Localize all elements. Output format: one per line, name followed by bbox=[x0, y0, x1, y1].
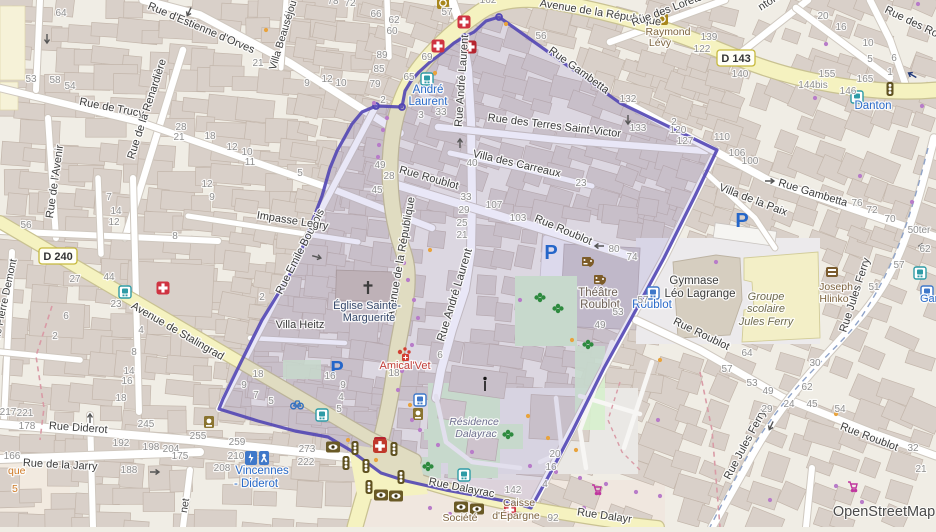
svg-text:6: 6 bbox=[437, 350, 443, 361]
svg-text:12: 12 bbox=[201, 179, 213, 190]
svg-text:40: 40 bbox=[466, 158, 478, 169]
svg-text:89: 89 bbox=[376, 50, 388, 61]
svg-text:- Diderot: - Diderot bbox=[234, 478, 279, 490]
svg-text:66: 66 bbox=[370, 9, 382, 20]
svg-text:2: 2 bbox=[380, 95, 386, 106]
svg-text:155: 155 bbox=[819, 69, 836, 80]
svg-text:45: 45 bbox=[371, 185, 383, 196]
svg-text:140: 140 bbox=[732, 69, 749, 80]
svg-text:51: 51 bbox=[868, 282, 880, 293]
svg-text:Danton: Danton bbox=[854, 100, 891, 112]
svg-text:255: 255 bbox=[190, 431, 207, 442]
svg-text:3: 3 bbox=[418, 110, 424, 121]
svg-text:192: 192 bbox=[113, 438, 130, 449]
svg-text:245: 245 bbox=[138, 419, 155, 430]
svg-text:7: 7 bbox=[106, 192, 112, 203]
svg-text:57: 57 bbox=[441, 7, 453, 18]
svg-text:57: 57 bbox=[721, 364, 733, 375]
svg-text:Joseph: Joseph bbox=[819, 281, 853, 293]
svg-text:50ter: 50ter bbox=[908, 225, 931, 236]
svg-text:21: 21 bbox=[252, 58, 264, 69]
svg-text:142: 142 bbox=[505, 485, 522, 496]
svg-text:49: 49 bbox=[594, 320, 606, 331]
svg-text:54: 54 bbox=[834, 404, 846, 415]
svg-text:12: 12 bbox=[321, 74, 333, 85]
svg-text:273: 273 bbox=[299, 444, 316, 455]
svg-text:Gymnase: Gymnase bbox=[669, 275, 718, 287]
svg-text:32: 32 bbox=[907, 443, 919, 454]
svg-text:70: 70 bbox=[884, 214, 896, 225]
svg-text:Jules Ferry: Jules Ferry bbox=[738, 316, 795, 328]
svg-text:18: 18 bbox=[388, 368, 400, 379]
svg-text:62: 62 bbox=[801, 382, 813, 393]
svg-text:14: 14 bbox=[110, 206, 122, 217]
svg-text:24: 24 bbox=[783, 399, 795, 410]
svg-text:23: 23 bbox=[110, 299, 122, 310]
svg-text:162: 162 bbox=[480, 0, 497, 6]
svg-text:178: 178 bbox=[19, 421, 36, 432]
svg-text:144bis: 144bis bbox=[798, 80, 827, 91]
svg-text:9: 9 bbox=[209, 192, 215, 203]
svg-text:33: 33 bbox=[460, 192, 472, 203]
svg-text:21: 21 bbox=[173, 132, 185, 143]
svg-text:Résidence: Résidence bbox=[449, 416, 499, 428]
svg-text:133: 133 bbox=[630, 123, 647, 134]
svg-text:5: 5 bbox=[268, 396, 274, 407]
svg-text:André: André bbox=[413, 84, 444, 96]
svg-text:58: 58 bbox=[49, 75, 61, 86]
svg-text:8: 8 bbox=[131, 347, 137, 358]
svg-text:72: 72 bbox=[344, 0, 356, 9]
svg-text:80: 80 bbox=[608, 244, 620, 255]
svg-text:20: 20 bbox=[549, 449, 561, 460]
svg-text:62: 62 bbox=[919, 244, 931, 255]
svg-text:103: 103 bbox=[510, 213, 527, 224]
svg-text:56: 56 bbox=[20, 220, 32, 231]
svg-text:P: P bbox=[544, 242, 557, 264]
svg-text:208: 208 bbox=[214, 463, 231, 474]
svg-text:29: 29 bbox=[458, 205, 470, 216]
svg-text:222: 222 bbox=[298, 457, 315, 468]
svg-text:64: 64 bbox=[741, 348, 753, 359]
svg-text:5: 5 bbox=[867, 54, 873, 65]
svg-text:28: 28 bbox=[383, 171, 395, 182]
svg-text:8: 8 bbox=[172, 231, 178, 242]
svg-text:10: 10 bbox=[335, 78, 347, 89]
svg-text:que: que bbox=[8, 465, 26, 477]
svg-text:146: 146 bbox=[840, 86, 857, 97]
svg-text:Hlinko: Hlinko bbox=[819, 293, 848, 305]
svg-text:18: 18 bbox=[252, 369, 264, 380]
svg-text:53: 53 bbox=[612, 307, 624, 318]
svg-text:9: 9 bbox=[340, 380, 346, 391]
svg-text:9: 9 bbox=[241, 380, 247, 391]
svg-text:12: 12 bbox=[226, 142, 238, 153]
svg-text:18: 18 bbox=[115, 393, 127, 404]
svg-text:1: 1 bbox=[887, 67, 893, 78]
svg-text:2: 2 bbox=[259, 292, 265, 303]
svg-text:Vincennes: Vincennes bbox=[235, 465, 289, 477]
svg-text:166: 166 bbox=[4, 451, 21, 462]
svg-text:Société: Société bbox=[442, 512, 477, 524]
svg-text:33: 33 bbox=[435, 107, 447, 118]
svg-text:20: 20 bbox=[817, 11, 829, 22]
svg-text:54: 54 bbox=[64, 81, 76, 92]
svg-text:92: 92 bbox=[547, 513, 559, 524]
svg-text:4: 4 bbox=[138, 325, 144, 336]
svg-text:16: 16 bbox=[324, 371, 336, 382]
svg-text:188: 188 bbox=[121, 465, 138, 476]
svg-text:132: 132 bbox=[620, 94, 637, 105]
svg-text:5: 5 bbox=[12, 483, 18, 495]
svg-text:Léo Lagrange: Léo Lagrange bbox=[665, 288, 736, 300]
svg-text:85: 85 bbox=[373, 64, 385, 75]
svg-text:65: 65 bbox=[403, 72, 415, 83]
svg-text:78: 78 bbox=[327, 0, 339, 7]
svg-text:76: 76 bbox=[851, 198, 863, 209]
svg-text:Groupe: Groupe bbox=[748, 291, 785, 303]
svg-text:122: 122 bbox=[694, 44, 711, 55]
svg-text:2: 2 bbox=[52, 331, 58, 342]
svg-text:D 240: D 240 bbox=[43, 251, 72, 263]
svg-text:53: 53 bbox=[25, 74, 37, 85]
svg-text:74: 74 bbox=[626, 252, 638, 263]
svg-text:Lévy: Lévy bbox=[649, 37, 672, 49]
svg-text:107: 107 bbox=[486, 200, 503, 211]
svg-text:Théâtre: Théâtre bbox=[578, 287, 618, 299]
svg-text:21: 21 bbox=[456, 230, 468, 241]
svg-text:OpenStreetMap: OpenStreetMap bbox=[833, 504, 935, 520]
svg-text:5: 5 bbox=[297, 168, 303, 179]
svg-text:259: 259 bbox=[229, 437, 246, 448]
svg-text:27: 27 bbox=[69, 274, 81, 285]
svg-text:44: 44 bbox=[103, 272, 115, 283]
svg-text:175: 175 bbox=[172, 451, 189, 462]
svg-text:72: 72 bbox=[866, 205, 878, 216]
svg-text:57: 57 bbox=[637, 295, 649, 306]
svg-text:net: net bbox=[178, 497, 192, 514]
svg-text:Caisse: Caisse bbox=[503, 497, 535, 509]
svg-text:139: 139 bbox=[701, 32, 718, 43]
svg-text:49: 49 bbox=[374, 160, 386, 171]
svg-text:221: 221 bbox=[17, 408, 34, 419]
svg-text:198: 198 bbox=[143, 442, 160, 453]
svg-text:P: P bbox=[735, 210, 748, 232]
svg-text:21: 21 bbox=[915, 464, 927, 475]
svg-text:18: 18 bbox=[204, 131, 216, 142]
svg-text:210: 210 bbox=[228, 451, 245, 462]
svg-text:16: 16 bbox=[835, 22, 847, 33]
svg-text:10: 10 bbox=[862, 38, 874, 49]
svg-text:12: 12 bbox=[108, 217, 120, 228]
svg-text:D 143: D 143 bbox=[721, 53, 750, 65]
svg-text:Villa Heitz: Villa Heitz bbox=[276, 319, 325, 331]
svg-text:6: 6 bbox=[63, 311, 69, 322]
svg-text:Marguerite: Marguerite bbox=[343, 312, 396, 324]
svg-text:Église Sainte-: Église Sainte- bbox=[333, 299, 401, 312]
svg-text:45: 45 bbox=[806, 399, 818, 410]
svg-text:25: 25 bbox=[456, 218, 468, 229]
svg-text:29: 29 bbox=[761, 404, 773, 415]
svg-text:9: 9 bbox=[304, 78, 310, 89]
svg-text:d'Épargne: d'Épargne bbox=[492, 509, 540, 522]
svg-text:56: 56 bbox=[535, 31, 547, 42]
svg-text:57: 57 bbox=[893, 260, 905, 271]
svg-text:Amical'Vet: Amical'Vet bbox=[379, 360, 430, 372]
svg-text:69: 69 bbox=[421, 52, 433, 63]
svg-text:64: 64 bbox=[55, 8, 67, 19]
svg-text:62: 62 bbox=[388, 15, 400, 26]
svg-text:79: 79 bbox=[369, 79, 381, 90]
svg-text:7: 7 bbox=[253, 390, 259, 401]
svg-text:127: 127 bbox=[677, 136, 694, 147]
svg-text:11: 11 bbox=[245, 157, 256, 168]
svg-text:49: 49 bbox=[762, 386, 774, 397]
svg-text:165: 165 bbox=[857, 74, 874, 85]
svg-text:4: 4 bbox=[542, 479, 548, 490]
svg-text:16: 16 bbox=[545, 462, 557, 473]
svg-text:6: 6 bbox=[891, 53, 897, 64]
svg-text:16: 16 bbox=[121, 376, 133, 387]
svg-text:scolaire: scolaire bbox=[747, 303, 785, 315]
svg-text:Gamb: Gamb bbox=[920, 293, 936, 305]
svg-text:100: 100 bbox=[742, 156, 759, 167]
svg-text:23: 23 bbox=[575, 178, 587, 189]
svg-text:60: 60 bbox=[386, 26, 398, 37]
svg-text:4: 4 bbox=[338, 392, 344, 403]
svg-text:30: 30 bbox=[809, 358, 821, 369]
svg-text:53: 53 bbox=[746, 378, 758, 389]
svg-text:217: 217 bbox=[0, 407, 17, 418]
svg-text:Dalayrac: Dalayrac bbox=[455, 428, 497, 440]
svg-text:2: 2 bbox=[671, 117, 677, 128]
svg-text:5: 5 bbox=[336, 404, 342, 415]
svg-text:110: 110 bbox=[714, 132, 730, 143]
